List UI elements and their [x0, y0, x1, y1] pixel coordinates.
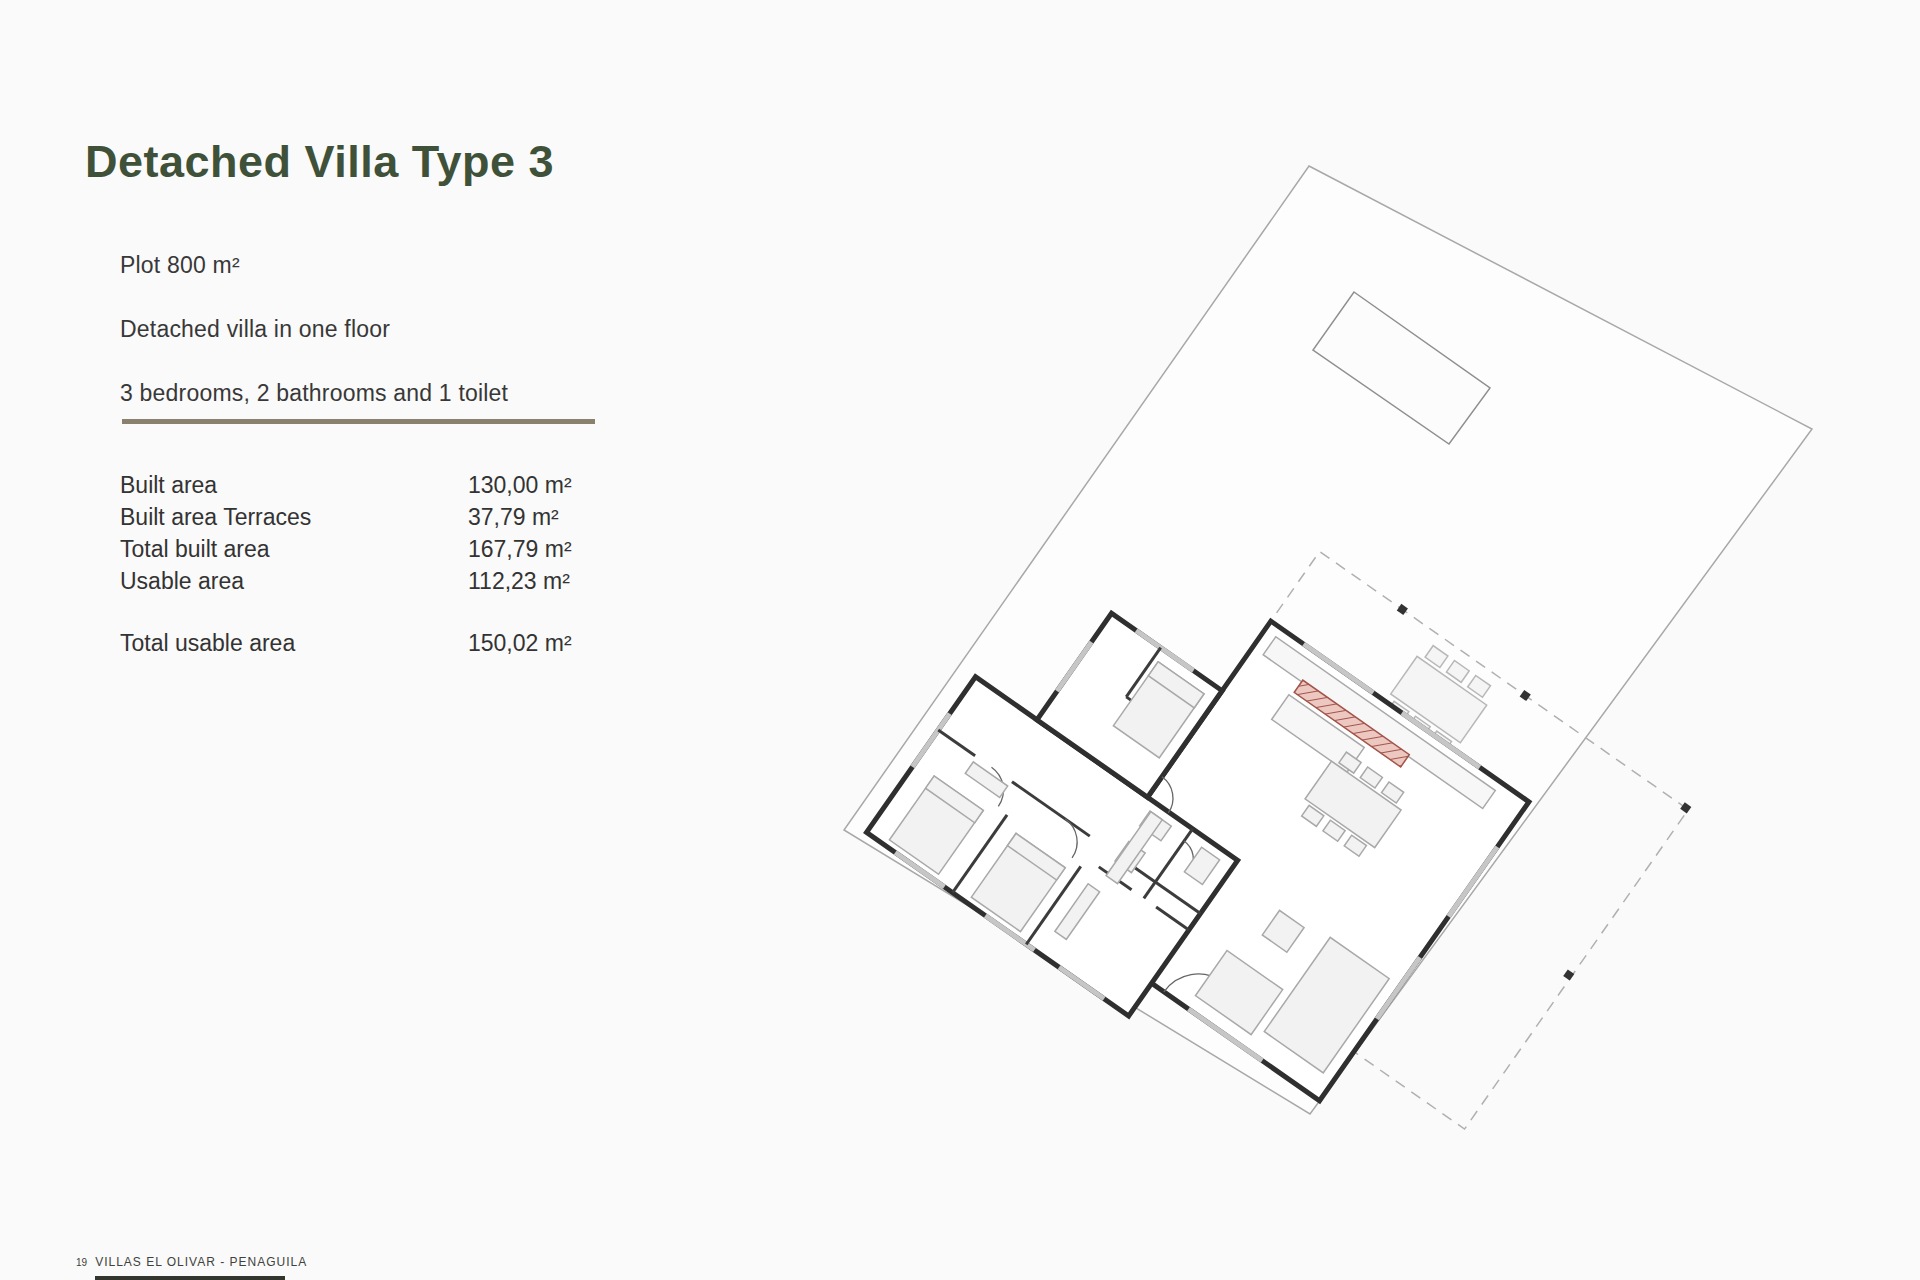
pergola-column — [1563, 969, 1574, 980]
project-name: VILLAS EL OLIVAR - PENAGUILA — [95, 1255, 307, 1269]
divider-line — [122, 419, 595, 424]
spec-value: 37,79 m² — [468, 504, 559, 531]
footer: 19VILLAS EL OLIVAR - PENAGUILA — [76, 1252, 307, 1270]
spec-row-total-built-area: Total built area 167,79 m² — [120, 536, 600, 563]
footer-underline — [95, 1276, 285, 1280]
spec-value: 112,23 m² — [468, 568, 570, 595]
spec-value: 150,02 m² — [468, 630, 572, 657]
villa-floors-text: Detached villa in one floor — [120, 316, 390, 343]
spec-value: 167,79 m² — [468, 536, 572, 563]
site-plan — [690, 80, 1920, 1230]
spec-label: Built area — [120, 472, 217, 498]
spec-value: 130,00 m² — [468, 472, 572, 499]
spec-row-built-area-terraces: Built area Terraces 37,79 m² — [120, 504, 600, 531]
spec-label: Total usable area — [120, 630, 295, 656]
page-number: 19 — [76, 1257, 87, 1268]
spec-label: Total built area — [120, 536, 270, 562]
rooms-text: 3 bedrooms, 2 bathrooms and 1 toilet — [120, 380, 508, 407]
spec-row-usable-area: Usable area 112,23 m² — [120, 568, 600, 595]
spec-row-built-area: Built area 130,00 m² — [120, 472, 600, 499]
spec-row-total-usable-area: Total usable area 150,02 m² — [120, 630, 600, 657]
spec-label: Usable area — [120, 568, 244, 594]
page-title: Detached Villa Type 3 — [85, 136, 554, 188]
plot-size-text: Plot 800 m² — [120, 252, 240, 279]
spec-label: Built area Terraces — [120, 504, 311, 530]
pergola-column — [1680, 802, 1691, 813]
